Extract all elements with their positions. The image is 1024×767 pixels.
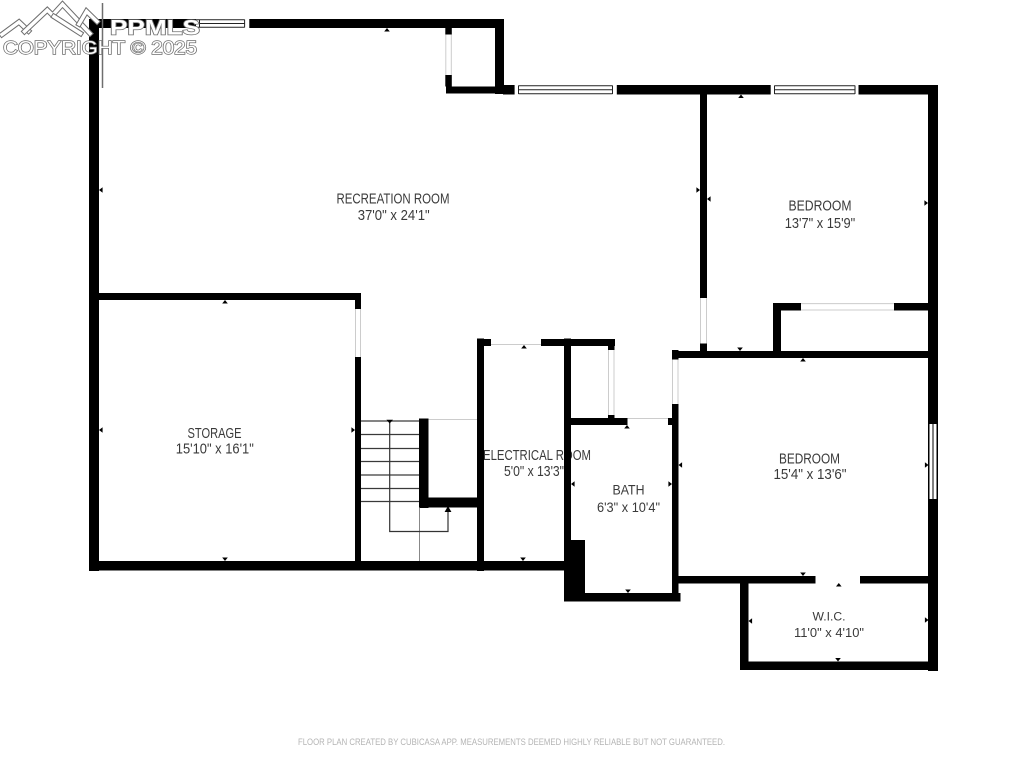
svg-text:STORAGE: STORAGE	[188, 425, 242, 442]
svg-text:11'0" x 4'10": 11'0" x 4'10"	[794, 626, 864, 640]
svg-text:W.I.C.: W.I.C.	[813, 610, 846, 624]
svg-text:5'0" x 13'3": 5'0" x 13'3"	[504, 463, 564, 480]
svg-text:15'4" x 13'6": 15'4" x 13'6"	[774, 466, 847, 483]
svg-text:13'7" x 15'9": 13'7" x 15'9"	[785, 215, 856, 232]
svg-text:RECREATION ROOM: RECREATION ROOM	[337, 190, 450, 207]
svg-text:BATH: BATH	[613, 483, 645, 498]
svg-text:FLOOR PLAN CREATED BY CUBICASA: FLOOR PLAN CREATED BY CUBICASA APP. MEAS…	[298, 737, 725, 748]
svg-text:BEDROOM: BEDROOM	[789, 198, 852, 215]
svg-text:15'10" x 16'1": 15'10" x 16'1"	[176, 441, 254, 458]
svg-text:ELECTRICAL ROOM: ELECTRICAL ROOM	[483, 447, 591, 464]
svg-text:COPYRIGHT © 2025: COPYRIGHT © 2025	[3, 38, 197, 58]
svg-text:37'0" x 24'1": 37'0" x 24'1"	[358, 207, 430, 224]
svg-text:6'3" x 10'4": 6'3" x 10'4"	[597, 500, 660, 515]
svg-text:PPMLS: PPMLS	[110, 16, 200, 40]
